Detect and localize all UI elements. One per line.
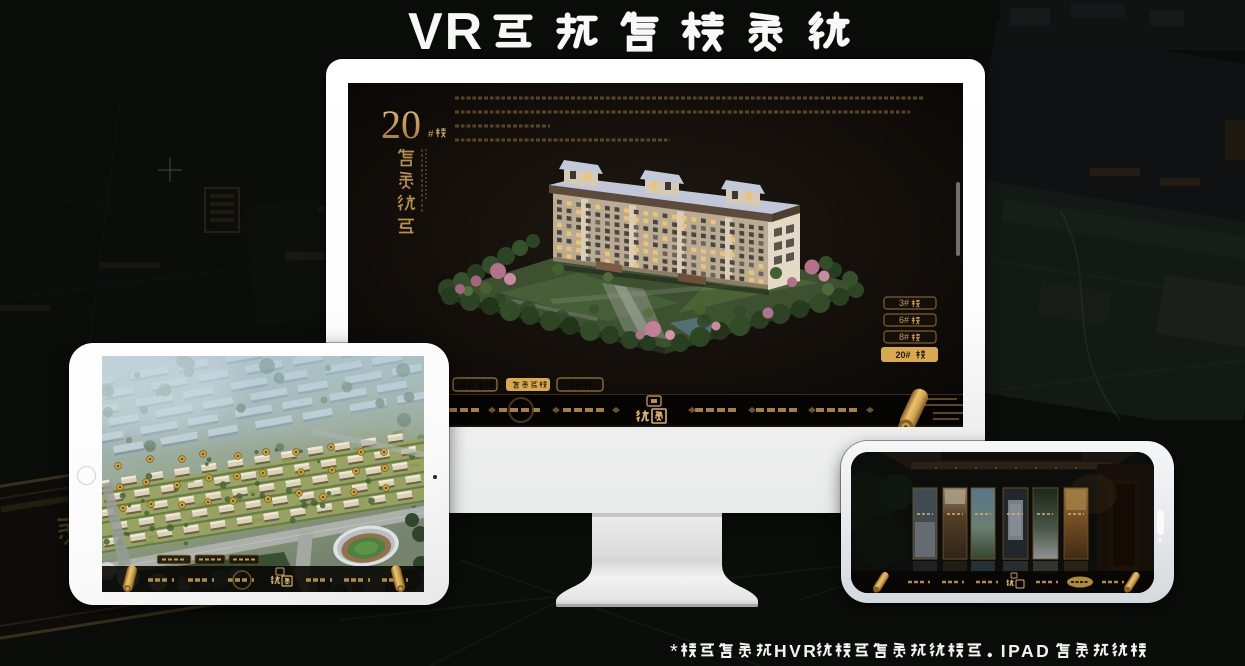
svg-text:8#: 8#	[899, 332, 909, 342]
svg-text:VR: VR	[408, 4, 484, 60]
svg-text:3#: 3#	[899, 298, 909, 308]
svg-text:*: *	[670, 641, 678, 663]
svg-text:20#: 20#	[895, 350, 910, 360]
svg-text:#: #	[428, 129, 434, 140]
svg-text:20: 20	[381, 102, 421, 147]
svg-text:HVR: HVR	[774, 641, 818, 661]
svg-text:IPAD: IPAD	[1001, 641, 1052, 661]
svg-text:6#: 6#	[899, 315, 909, 325]
